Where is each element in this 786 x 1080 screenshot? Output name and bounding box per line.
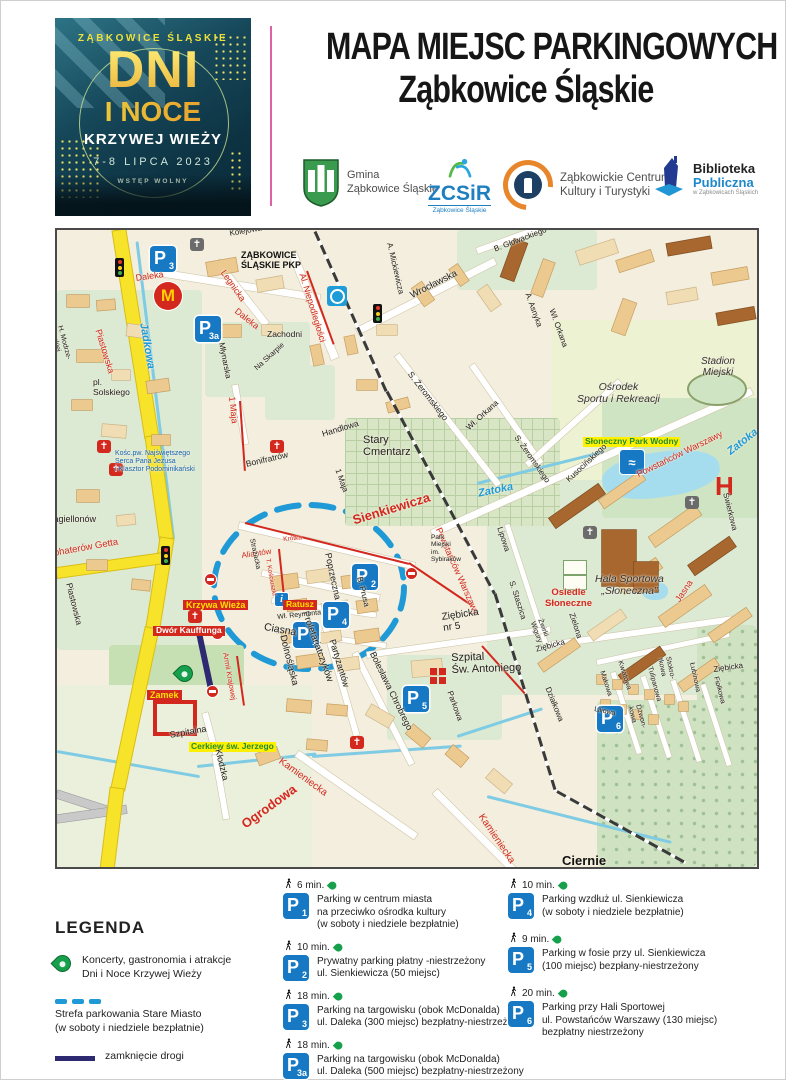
walk-time: 10 min. <box>508 876 768 891</box>
logo-biblioteka-line1: Biblioteka <box>693 162 758 176</box>
library-tower-icon <box>652 156 686 202</box>
building <box>310 344 324 366</box>
parking-list-entry: 6 min.P1Parking w centrum miasta na prze… <box>283 876 511 932</box>
walking-icon <box>283 987 294 1002</box>
map-label: Stadion Miejski <box>701 356 735 378</box>
parking-badge: P3a <box>283 1053 309 1079</box>
building <box>67 295 89 307</box>
walk-time: 18 min. <box>283 1036 511 1051</box>
building <box>132 579 151 591</box>
traffic-light-icon <box>373 304 382 323</box>
building <box>679 702 688 711</box>
parking-badge: P2 <box>283 955 309 981</box>
traffic-light-icon <box>161 546 170 565</box>
church-icon: ✝ <box>350 736 364 749</box>
traffic-light-icon <box>115 258 124 277</box>
parking-description: Parking wzdłuż ul. Sienkiewicza (w sobot… <box>542 894 684 919</box>
parking-map: KolejowaZĄBKOWICE ŚLĄSKIE PKPLegnickaDal… <box>55 228 759 869</box>
building <box>445 745 468 767</box>
map-label: A. Mickiewicza <box>384 242 405 295</box>
church-icon: ✝ <box>685 496 699 509</box>
parking-list-right: 10 min.P4Parking wzdłuż ul. Sienkiewicza… <box>508 876 768 1051</box>
building <box>72 400 92 410</box>
building <box>102 424 127 438</box>
parking-list-entry: 18 min.P3aParking na targowisku (obok Mc… <box>283 1036 511 1079</box>
parking-badge: P4 <box>508 893 534 919</box>
church-icon: ✝ <box>97 440 111 453</box>
building <box>665 695 674 704</box>
no-entry-icon <box>205 574 216 585</box>
map-label: Kolejowa <box>229 228 263 239</box>
map-label: Zamek <box>147 690 182 700</box>
map-label: Osiedle Słoneczne <box>545 588 592 609</box>
page: ZĄBKOWICE ŚLĄSKIE DNI I NOCE KRZYWEJ WIE… <box>0 0 786 1080</box>
parking-description: Parking na targowisku (obok McDonalda) u… <box>317 1054 524 1079</box>
parking-badge: P1 <box>283 893 309 919</box>
building <box>649 715 658 724</box>
building <box>377 325 397 335</box>
walk-time: 6 min. <box>283 876 511 891</box>
page-title: MAPA MIEJSC PARKINGOWYCH Ząbkowice Śląsk… <box>276 26 776 111</box>
parking-zone-dash-icon <box>55 999 270 1004</box>
map-label: Bonifratrów <box>245 450 289 469</box>
pin-icon <box>333 990 344 1001</box>
event-poster: ZĄBKOWICE ŚLĄSKIE DNI I NOCE KRZYWEJ WIE… <box>55 18 251 216</box>
parking-badge: P3 <box>283 1004 309 1030</box>
logo-bar: Gmina Ząbkowice Śląskie ZCSiR Ząbkowice … <box>290 150 776 220</box>
forest-area <box>697 625 757 867</box>
building <box>327 704 348 716</box>
map-label: Ziębicka nr 5 <box>441 607 481 634</box>
logo-zckit: Ząbkowickie Centrum Kultury i Turystyki <box>503 160 671 210</box>
zcsir-figure-icon <box>443 158 477 178</box>
parking-description: Parking w fosie przy ul. Sienkiewicza (1… <box>542 948 705 973</box>
pin-icon <box>558 988 569 999</box>
stream <box>312 745 462 758</box>
parking-list-entry: 10 min.P4Parking wzdłuż ul. Sienkiewicza… <box>508 876 768 919</box>
map-label: Hala Sportowa „Słoneczna” <box>595 574 664 598</box>
walk-time-label: 20 min. <box>522 988 555 999</box>
building <box>287 699 312 713</box>
walk-time: 20 min. <box>508 984 768 999</box>
legend: LEGENDA Koncerty, gastronomia i atrakcje… <box>55 918 270 1063</box>
no-entry-icon <box>406 568 417 579</box>
parking-marker: P3 <box>150 246 176 272</box>
parking-description: Parking przy Hali Sportowej ul. Powstańc… <box>542 1002 717 1040</box>
parking-description: Parking w centrum miasta na przeciwko oś… <box>317 894 459 932</box>
building <box>117 514 136 526</box>
map-label: S. Żeromskiego <box>406 370 450 423</box>
walking-icon <box>283 1036 294 1051</box>
walking-icon <box>508 984 519 999</box>
road-closed-line-icon <box>55 1056 95 1061</box>
pin-icon <box>333 1039 344 1050</box>
map-label: Wł. Reymonta <box>277 609 322 621</box>
walk-time: 18 min. <box>283 987 511 1002</box>
poster-crowd-silhouette <box>55 174 251 216</box>
walk-time-label: 10 min. <box>522 880 555 891</box>
map-label: Ośrodek Sportu i Rekreacji <box>577 382 660 406</box>
walk-time-label: 18 min. <box>297 991 330 1002</box>
building <box>666 236 711 255</box>
building <box>486 769 512 794</box>
map-label: Dwór Kauffunga <box>153 626 225 636</box>
green-area <box>265 365 335 420</box>
logo-gmina: Gmina Ząbkowice Śląskie <box>302 158 438 208</box>
building <box>307 739 328 751</box>
pin-icon <box>177 666 192 681</box>
divider-line <box>270 26 272 206</box>
building <box>97 299 116 311</box>
pin-icon <box>327 880 338 891</box>
legend-pin-label: Koncerty, gastronomia i atrakcje Dni i N… <box>82 954 231 981</box>
parking-description: Prywatny parking płatny -niestrzeżony ul… <box>317 956 485 981</box>
parking-badge: P5 <box>508 947 534 973</box>
pin-icon <box>333 941 344 952</box>
walk-time: 9 min. <box>508 930 768 945</box>
building <box>344 335 358 355</box>
walking-icon <box>283 876 294 891</box>
map-label: pl. Solskiego <box>93 378 130 397</box>
building <box>357 380 377 390</box>
map-label: Ratusz <box>283 600 317 610</box>
parking-list-entry: 9 min.P5Parking w fosie przy ul. Sienkie… <box>508 930 768 973</box>
map-label: Cerkiew św. Jerzego <box>189 742 276 752</box>
pin-icon <box>52 953 73 974</box>
medical-cross-icon <box>430 668 446 684</box>
poster-title-line3: KRZYWEJ WIEŻY <box>55 131 251 148</box>
poster-title-line2: I NOCE <box>55 98 251 126</box>
walk-time-label: 10 min. <box>297 942 330 953</box>
logo-biblioteka-line2: Publiczna <box>693 176 758 190</box>
logo-zcsir-sublabel: Ząbkowice Śląskie <box>428 205 491 214</box>
legend-zone-label: Strefa parkowania Stare Miasto (w soboty… <box>55 1008 270 1035</box>
walking-icon <box>283 938 294 953</box>
map-label: Park Miejski im. Sybiraków <box>431 534 461 563</box>
poster-title-line1: DNI <box>55 44 251 96</box>
walking-icon <box>508 876 519 891</box>
walk-time: 10 min. <box>283 938 511 953</box>
church-icon: ✝ <box>188 610 202 623</box>
poster-date: 7-8 LIPCA 2023 <box>55 156 251 168</box>
building <box>666 287 698 304</box>
map-label: Zachodni <box>267 330 302 340</box>
parking-badge: P6 <box>508 1001 534 1027</box>
logo-zcsir: ZCSiR Ząbkowice Śląskie <box>428 158 491 214</box>
walking-icon <box>508 930 519 945</box>
pin-icon <box>552 934 563 945</box>
map-label: Ciernie <box>562 854 606 869</box>
walk-time-label: 18 min. <box>297 1040 330 1051</box>
page-title-line1: MAPA MIEJSC PARKINGOWYCH <box>326 26 726 69</box>
mcdonalds-icon: M <box>154 282 182 310</box>
parking-description: Parking na targowisku (obok McDonalda) u… <box>317 1005 524 1030</box>
map-label: Szpital Św. Antoniego <box>451 650 522 677</box>
parking-marker: P4 <box>323 602 349 628</box>
street-road <box>295 751 418 840</box>
parking-marker: P3a <box>195 316 221 342</box>
map-label: Stary Cmentarz <box>363 434 411 459</box>
map-label: ZĄBKOWICE ŚLĄSKIE PKP <box>241 250 301 270</box>
walk-time-label: 9 min. <box>522 934 549 945</box>
walk-time-label: 6 min. <box>297 880 324 891</box>
building <box>77 490 99 502</box>
parking-list-left: 6 min.P1Parking w centrum miasta na prze… <box>283 876 511 1080</box>
legend-title: LEGENDA <box>55 918 270 938</box>
parking-list-entry: 18 min.P3Parking na targowisku (obok McD… <box>283 987 511 1030</box>
building <box>152 435 170 445</box>
logo-biblioteka: Biblioteka Publiczna w Ząbkowicach Śląsk… <box>652 156 758 202</box>
tennis-court-icon <box>563 560 587 590</box>
church-icon: ✝ <box>583 526 597 539</box>
logo-zcsir-acronym: ZCSiR <box>428 183 491 204</box>
logo-gmina-label: Gmina Ząbkowice Śląskie <box>347 169 438 197</box>
church-icon: ✝ <box>190 238 204 251</box>
map-label: Kośc.pw. Najświętszego Serca Pana Jezusa… <box>115 450 195 473</box>
building <box>613 680 622 689</box>
logo-biblioteka-sublabel: w Ząbkowicach Śląskich <box>693 190 758 196</box>
pin-icon <box>558 880 569 891</box>
map-label: Jagiellonów <box>55 514 96 524</box>
tower-ring-icon <box>493 150 563 220</box>
coat-of-arms-icon <box>302 158 340 208</box>
building <box>616 250 654 273</box>
parking-list-entry: 10 min.P2Prywatny parking płatny -niestr… <box>283 938 511 981</box>
transport-icon <box>327 286 347 306</box>
building <box>711 267 749 285</box>
map-label: A. Asnyka <box>523 292 544 328</box>
map-label: Krzywa Wieża <box>183 600 248 610</box>
no-entry-icon <box>207 686 218 697</box>
page-title-line2: Ząbkowice Śląskie <box>326 69 726 112</box>
building <box>87 560 107 570</box>
parking-marker: P5 <box>403 686 429 712</box>
parking-list-entry: 20 min.P6Parking przy Hali Sportowej ul.… <box>508 984 768 1040</box>
legend-closed-label: zamknięcie drogi <box>105 1050 184 1064</box>
